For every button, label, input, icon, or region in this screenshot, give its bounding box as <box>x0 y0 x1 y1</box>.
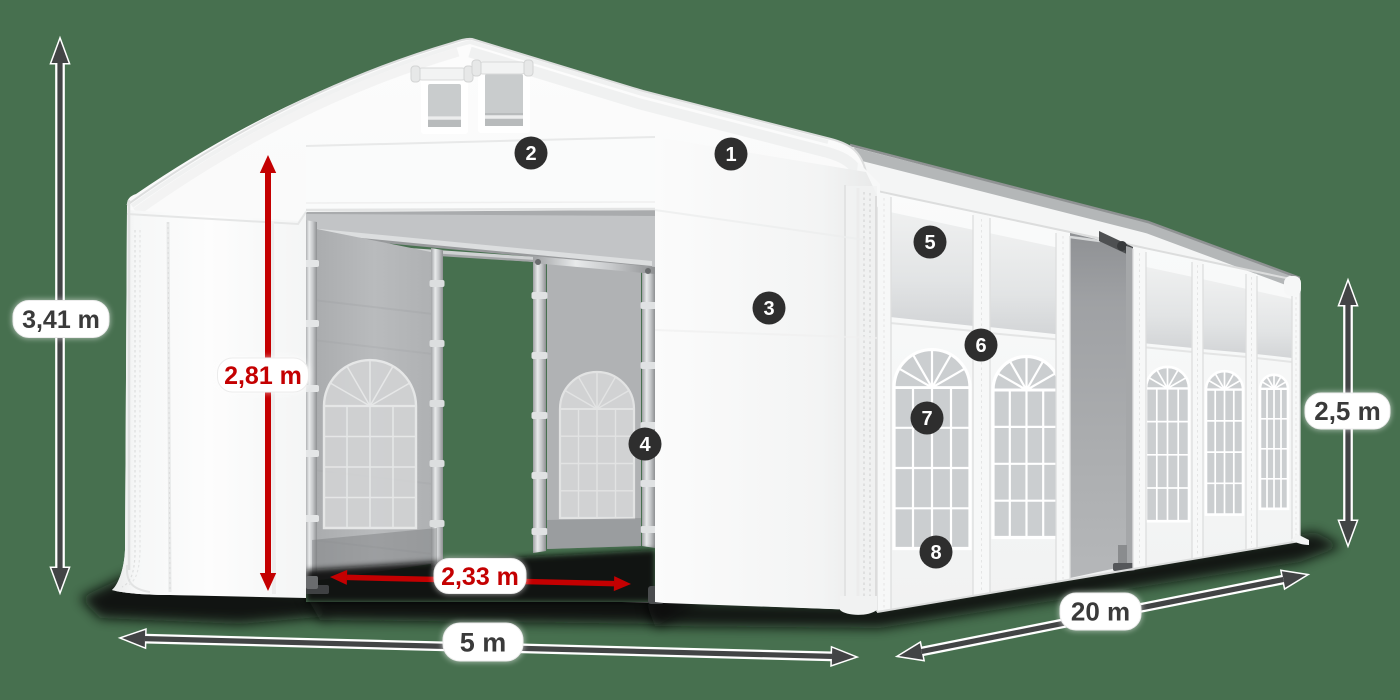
svg-text:3: 3 <box>763 298 774 320</box>
svg-text:3,41 m: 3,41 m <box>22 306 100 334</box>
svg-text:8: 8 <box>930 542 941 564</box>
svg-text:2,81 m: 2,81 m <box>224 362 302 390</box>
svg-text:5: 5 <box>924 232 935 254</box>
svg-text:6: 6 <box>975 335 986 357</box>
svg-text:7: 7 <box>921 408 932 430</box>
svg-text:20 m: 20 m <box>1071 597 1130 627</box>
svg-text:1: 1 <box>725 144 736 166</box>
svg-text:5 m: 5 m <box>460 628 507 658</box>
svg-text:2,5 m: 2,5 m <box>1314 396 1381 426</box>
svg-text:2,33 m: 2,33 m <box>441 563 519 591</box>
svg-text:4: 4 <box>639 434 651 456</box>
svg-text:2: 2 <box>525 143 536 165</box>
